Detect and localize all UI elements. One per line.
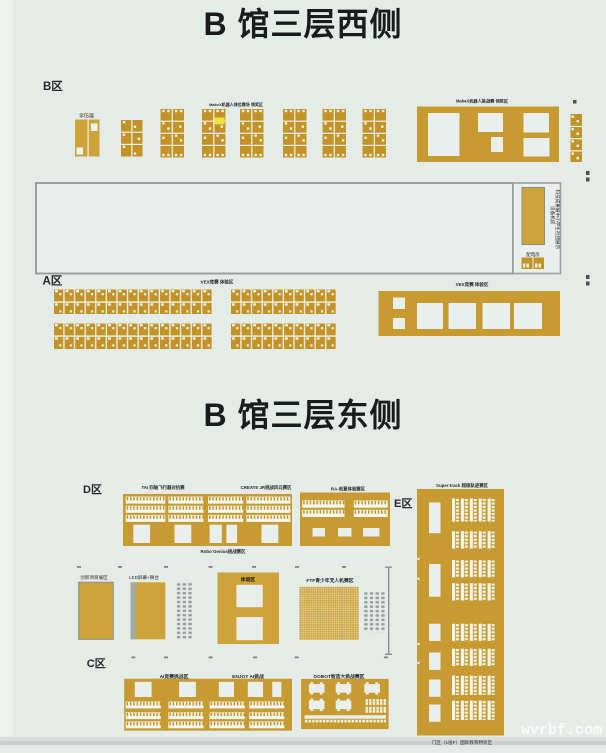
svg-text:Robo Genius挑战赛区: Robo Genius挑战赛区 <box>201 548 246 555</box>
svg-text:A区: A区 <box>43 275 63 288</box>
svg-text:VEX竞赛 体验区: VEX竞赛 体验区 <box>456 281 489 288</box>
svg-text:B 馆三层西侧: B 馆三层西侧 <box>203 6 402 42</box>
svg-text:门区（1层F）国际教育特装区: 门区（1层F）国际教育特装区 <box>432 739 493 746</box>
svg-text:MakeX机器人排位赛场 领奖区: MakeX机器人排位赛场 领奖区 <box>209 101 263 107</box>
svg-text:LED屏幕+舞台: LED屏幕+舞台 <box>129 574 159 581</box>
svg-text:Super-track 超级轨迹赛区: Super-track 超级轨迹赛区 <box>436 482 489 489</box>
svg-text:FTF青少年无人机赛区: FTF青少年无人机赛区 <box>306 577 353 584</box>
svg-text:B区: B区 <box>43 80 63 93</box>
svg-text:E区: E区 <box>394 497 412 510</box>
svg-text:D区: D区 <box>83 483 102 496</box>
svg-text:体验区: 体验区 <box>241 576 256 583</box>
svg-text:创新项目展区: 创新项目展区 <box>80 574 108 581</box>
svg-text:配电房: 配电房 <box>526 251 540 258</box>
svg-text:MakeX机器人挑战赛 领奖区: MakeX机器人挑战赛 领奖区 <box>456 98 509 105</box>
svg-text:RA-创意体验赛区: RA-创意体验赛区 <box>331 486 366 493</box>
svg-text:C区: C区 <box>87 657 106 670</box>
svg-text:CREATE JR挑战风云赛区: CREATE JR挑战风云赛区 <box>241 484 293 491</box>
svg-text:学历展: 学历展 <box>79 113 94 120</box>
svg-text:TAI 四轴飞行器对抗赛: TAI 四轴飞行器对抗赛 <box>141 484 185 491</box>
svg-text:VEX竞赛 体验区: VEX竞赛 体验区 <box>201 279 234 286</box>
svg-text:wvrbf.com: wvrbf.com <box>521 722 602 739</box>
svg-text:B 馆三层东侧: B 馆三层东侧 <box>203 397 402 433</box>
svg-text:设备机房: 设备机房 <box>549 206 556 225</box>
